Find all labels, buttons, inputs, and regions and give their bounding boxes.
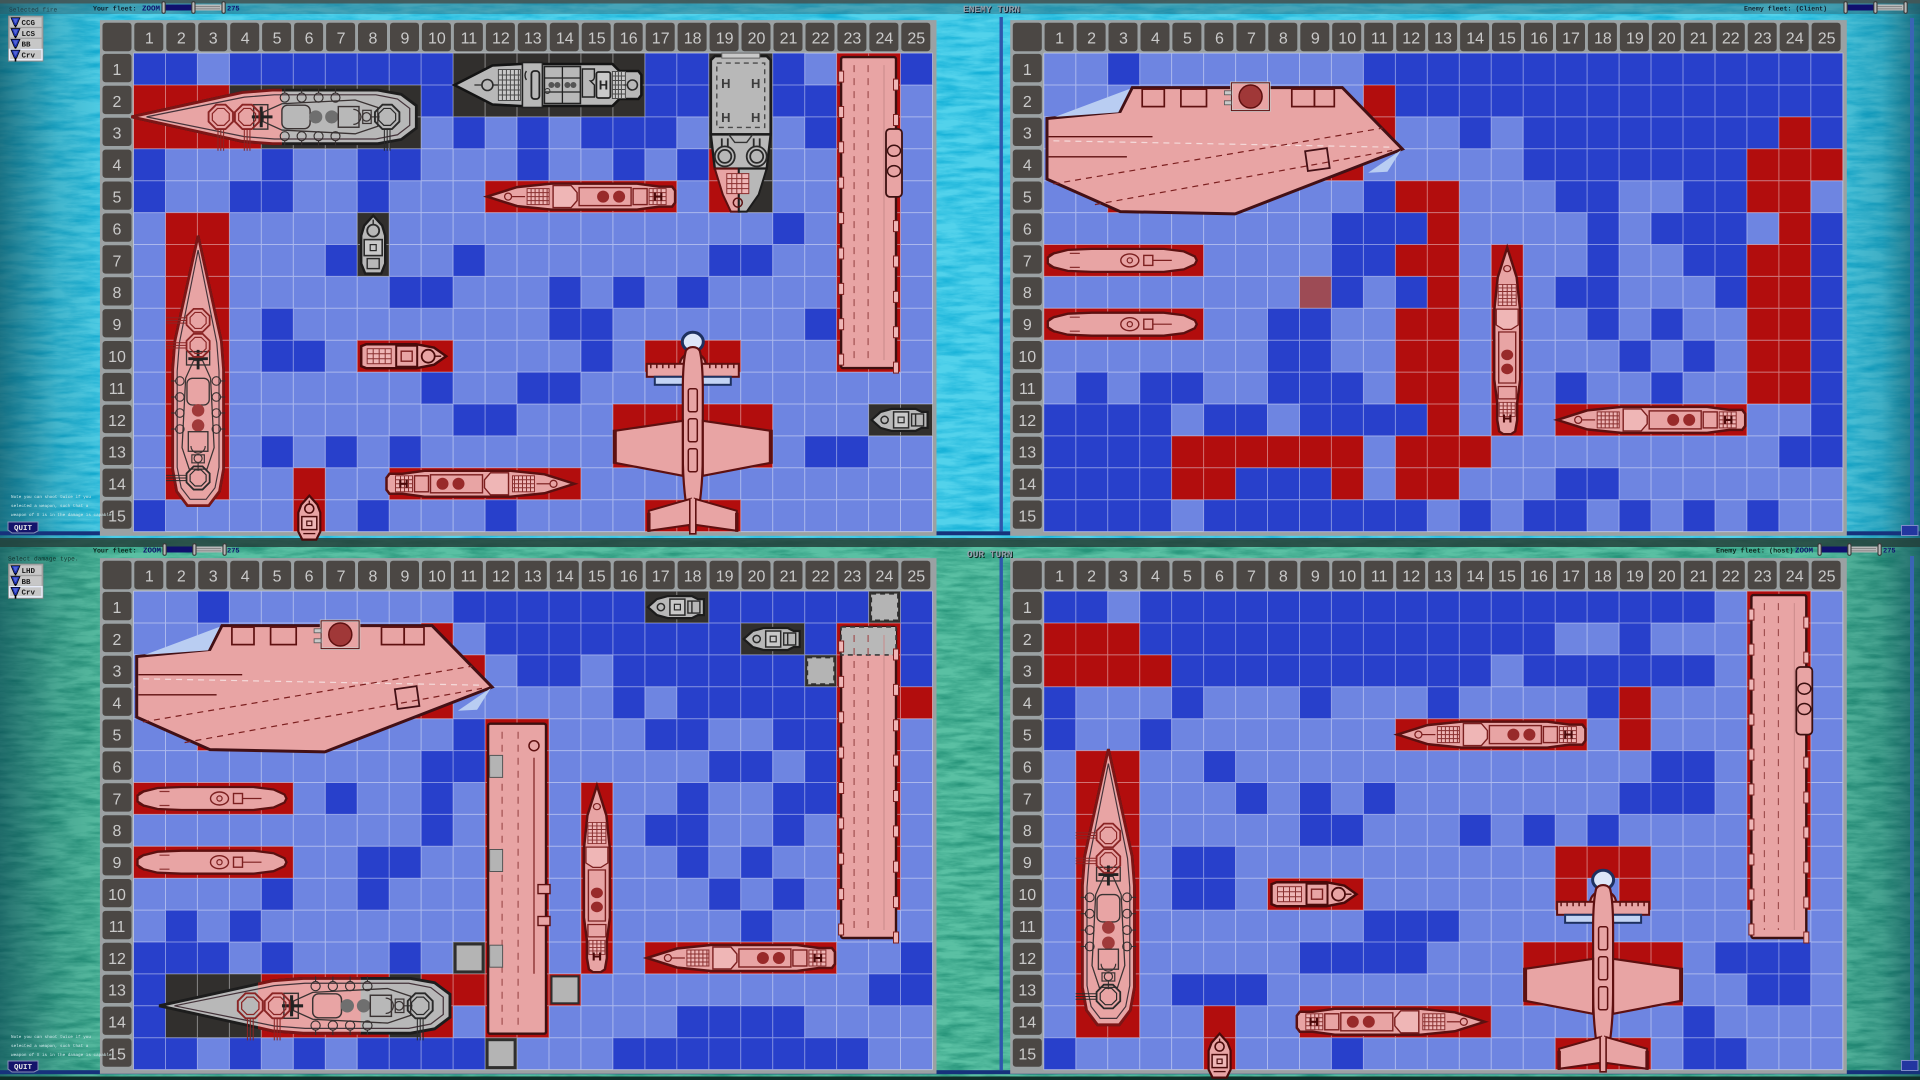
svg-text:18: 18 — [1594, 31, 1612, 48]
svg-text:25: 25 — [1818, 31, 1836, 48]
svg-text:19: 19 — [1626, 31, 1644, 48]
svg-text:4: 4 — [241, 31, 250, 48]
svg-text:5: 5 — [273, 569, 282, 586]
svg-text:Note you can shoot twice if yo: Note you can shoot twice if you — [11, 494, 91, 500]
svg-text:Crv: Crv — [22, 51, 36, 60]
svg-text:BB: BB — [22, 42, 32, 50]
svg-text:1: 1 — [113, 62, 122, 79]
svg-text:15: 15 — [588, 569, 606, 586]
svg-text:20: 20 — [748, 31, 766, 48]
svg-text:ZOOM: ZOOM — [142, 5, 161, 14]
svg-text:9: 9 — [113, 855, 122, 872]
svg-text:14: 14 — [556, 569, 574, 586]
svg-text:12: 12 — [1018, 413, 1036, 430]
svg-text:8: 8 — [113, 823, 122, 840]
svg-text:20: 20 — [1658, 569, 1676, 586]
svg-text:3: 3 — [209, 569, 218, 586]
svg-text:16: 16 — [1530, 569, 1548, 586]
svg-text:4: 4 — [1023, 158, 1032, 175]
svg-text:3: 3 — [1119, 569, 1128, 586]
svg-text:5: 5 — [1023, 728, 1032, 745]
svg-text:8: 8 — [369, 569, 378, 586]
svg-text:23: 23 — [844, 569, 862, 586]
svg-text:13: 13 — [1018, 983, 1036, 1000]
svg-text:11: 11 — [461, 569, 478, 586]
svg-text:3: 3 — [113, 664, 122, 681]
svg-text:5: 5 — [1183, 31, 1192, 48]
svg-text:10: 10 — [1338, 31, 1356, 48]
svg-text:15: 15 — [1498, 569, 1516, 586]
svg-text:14: 14 — [556, 31, 574, 48]
svg-text:ZOOM: ZOOM — [143, 547, 162, 556]
svg-text:4: 4 — [113, 158, 122, 175]
svg-text:10: 10 — [428, 569, 446, 586]
svg-text:Selected fire: Selected fire — [9, 7, 58, 14]
svg-text:13: 13 — [108, 983, 126, 1000]
svg-text:1: 1 — [1055, 569, 1064, 586]
svg-text:1: 1 — [145, 31, 154, 48]
svg-text:275: 275 — [227, 548, 240, 556]
svg-text:7: 7 — [113, 253, 122, 270]
svg-text:14: 14 — [108, 1015, 126, 1032]
svg-text:7: 7 — [1023, 791, 1032, 808]
svg-text:14: 14 — [1018, 477, 1036, 494]
svg-text:18: 18 — [1594, 569, 1612, 586]
svg-text:6: 6 — [305, 31, 314, 48]
svg-text:23: 23 — [1754, 31, 1772, 48]
svg-text:14: 14 — [1466, 569, 1484, 586]
svg-text:22: 22 — [812, 569, 830, 586]
svg-text:16: 16 — [620, 31, 638, 48]
svg-text:10: 10 — [108, 887, 126, 904]
svg-text:4: 4 — [1151, 31, 1160, 48]
svg-text:12: 12 — [492, 31, 510, 48]
svg-text:11: 11 — [1019, 381, 1036, 398]
svg-text:5: 5 — [113, 728, 122, 745]
svg-text:5: 5 — [273, 31, 282, 48]
svg-text:H: H — [721, 110, 730, 125]
svg-text:17: 17 — [652, 31, 670, 48]
svg-text:9: 9 — [113, 317, 122, 334]
svg-text:7: 7 — [1023, 253, 1032, 270]
svg-text:12: 12 — [108, 951, 126, 968]
svg-text:1: 1 — [1023, 600, 1032, 617]
svg-text:10: 10 — [1018, 887, 1036, 904]
svg-text:Your fleet:: Your fleet: — [93, 6, 137, 13]
svg-text:2: 2 — [177, 569, 186, 586]
svg-text:6: 6 — [1023, 759, 1032, 776]
svg-text:15: 15 — [1018, 509, 1036, 526]
svg-text:14: 14 — [1466, 31, 1484, 48]
svg-text:15: 15 — [1498, 31, 1516, 48]
svg-text:weapon of X is in the damage i: weapon of X is in the damage is capable — [11, 512, 112, 518]
svg-text:4: 4 — [113, 696, 122, 713]
svg-text:8: 8 — [1279, 31, 1288, 48]
svg-text:7: 7 — [1247, 31, 1256, 48]
svg-text:7: 7 — [113, 791, 122, 808]
svg-text:weapon of X is in the damage i: weapon of X is in the damage is capable — [11, 1052, 112, 1058]
svg-text:11: 11 — [461, 31, 478, 48]
svg-text:3: 3 — [1023, 664, 1032, 681]
svg-text:8: 8 — [1279, 569, 1288, 586]
svg-text:Crv: Crv — [22, 589, 36, 598]
svg-text:2: 2 — [1023, 94, 1032, 111]
svg-text:3: 3 — [1023, 126, 1032, 143]
svg-text:22: 22 — [1722, 31, 1740, 48]
svg-text:1: 1 — [113, 600, 122, 617]
svg-text:21: 21 — [1690, 569, 1708, 586]
svg-text:1: 1 — [1023, 62, 1032, 79]
svg-text:2: 2 — [1087, 569, 1096, 586]
svg-text:9: 9 — [1311, 31, 1320, 48]
svg-text:8: 8 — [1023, 823, 1032, 840]
svg-text:7: 7 — [337, 569, 346, 586]
svg-text:21: 21 — [1690, 31, 1708, 48]
svg-text:17: 17 — [1562, 31, 1580, 48]
svg-text:9: 9 — [1311, 569, 1320, 586]
svg-text:24: 24 — [1786, 569, 1804, 586]
svg-text:6: 6 — [113, 221, 122, 238]
svg-text:13: 13 — [1018, 445, 1036, 462]
svg-text:9: 9 — [401, 31, 410, 48]
svg-text:11: 11 — [109, 381, 126, 398]
svg-text:6: 6 — [113, 759, 122, 776]
svg-text:275: 275 — [227, 6, 240, 14]
svg-text:24: 24 — [876, 31, 894, 48]
svg-text:Enemy fleet: (Client): Enemy fleet: (Client) — [1744, 6, 1827, 13]
svg-text:11: 11 — [1371, 569, 1388, 586]
svg-text:12: 12 — [1402, 31, 1420, 48]
svg-text:275: 275 — [1883, 548, 1896, 556]
svg-text:19: 19 — [716, 569, 734, 586]
svg-text:2: 2 — [1087, 31, 1096, 48]
svg-text:ENEMY TURN: ENEMY TURN — [963, 4, 1020, 15]
svg-text:6: 6 — [1215, 569, 1224, 586]
svg-text:13: 13 — [108, 445, 126, 462]
svg-text:4: 4 — [241, 569, 250, 586]
svg-text:25: 25 — [1818, 569, 1836, 586]
svg-text:8: 8 — [1023, 285, 1032, 302]
svg-text:14: 14 — [108, 477, 126, 494]
svg-text:16: 16 — [620, 569, 638, 586]
svg-text:17: 17 — [1562, 569, 1580, 586]
svg-text:10: 10 — [1018, 349, 1036, 366]
svg-text:19: 19 — [1626, 569, 1644, 586]
svg-text:10: 10 — [1338, 569, 1356, 586]
svg-text:23: 23 — [844, 31, 862, 48]
svg-text:21: 21 — [780, 569, 798, 586]
svg-text:18: 18 — [684, 31, 702, 48]
svg-text:9: 9 — [1023, 855, 1032, 872]
svg-text:H: H — [599, 78, 608, 93]
svg-text:LCS: LCS — [22, 30, 36, 39]
svg-text:21: 21 — [780, 31, 798, 48]
svg-text:2: 2 — [177, 31, 186, 48]
svg-text:Note you can shoot twice if yo: Note you can shoot twice if you — [11, 1034, 91, 1040]
svg-text:20: 20 — [748, 569, 766, 586]
svg-text:12: 12 — [492, 569, 510, 586]
svg-text:15: 15 — [588, 31, 606, 48]
svg-text:11: 11 — [109, 919, 126, 936]
svg-text:Select damage type.: Select damage type. — [8, 556, 79, 563]
svg-text:24: 24 — [876, 569, 894, 586]
svg-text:11: 11 — [1371, 31, 1388, 48]
svg-text:18: 18 — [684, 569, 702, 586]
svg-text:QUIT: QUIT — [14, 1063, 33, 1072]
svg-text:14: 14 — [1018, 1015, 1036, 1032]
svg-text:QUIT: QUIT — [14, 524, 33, 533]
svg-text:24: 24 — [1786, 31, 1804, 48]
svg-text:10: 10 — [108, 349, 126, 366]
svg-text:23: 23 — [1754, 569, 1772, 586]
svg-text:5: 5 — [113, 190, 122, 207]
svg-text:4: 4 — [1023, 696, 1032, 713]
svg-text:ZOOM: ZOOM — [1795, 547, 1814, 556]
svg-text:13: 13 — [1434, 569, 1452, 586]
svg-text:2: 2 — [113, 632, 122, 649]
svg-text:9: 9 — [401, 569, 410, 586]
svg-text:13: 13 — [524, 31, 542, 48]
svg-text:2: 2 — [1023, 632, 1032, 649]
svg-text:10: 10 — [428, 31, 446, 48]
svg-text:13: 13 — [1434, 31, 1452, 48]
svg-text:19: 19 — [716, 31, 734, 48]
svg-text:H: H — [721, 76, 730, 91]
svg-text:7: 7 — [1247, 569, 1256, 586]
svg-text:11: 11 — [1019, 919, 1036, 936]
svg-text:3: 3 — [209, 31, 218, 48]
svg-text:LHD: LHD — [22, 568, 36, 576]
svg-text:1: 1 — [1055, 31, 1064, 48]
svg-text:8: 8 — [113, 285, 122, 302]
svg-text:BB: BB — [22, 579, 32, 587]
svg-text:12: 12 — [1402, 569, 1420, 586]
svg-text:13: 13 — [524, 569, 542, 586]
svg-text:selected a weapon, such that a: selected a weapon, such that a — [11, 1043, 89, 1049]
svg-text:20: 20 — [1658, 31, 1676, 48]
svg-text:16: 16 — [1530, 31, 1548, 48]
svg-text:12: 12 — [1018, 951, 1036, 968]
svg-text:15: 15 — [1018, 1047, 1036, 1064]
svg-text:H: H — [751, 76, 760, 91]
svg-text:3: 3 — [113, 126, 122, 143]
svg-text:4: 4 — [1151, 569, 1160, 586]
svg-text:2: 2 — [113, 94, 122, 111]
svg-text:6: 6 — [305, 569, 314, 586]
svg-text:17: 17 — [652, 569, 670, 586]
svg-text:22: 22 — [1722, 569, 1740, 586]
svg-text:Enemy fleet: (host): Enemy fleet: (host) — [1716, 547, 1794, 556]
svg-text:3: 3 — [1119, 31, 1128, 48]
svg-text:25: 25 — [907, 31, 925, 48]
svg-text:5: 5 — [1023, 190, 1032, 207]
svg-text:6: 6 — [1215, 31, 1224, 48]
svg-text:5: 5 — [1183, 569, 1192, 586]
svg-text:selected a weapon, such that a: selected a weapon, such that a — [11, 503, 89, 509]
svg-text:OUR TURN: OUR TURN — [967, 549, 1013, 560]
svg-text:7: 7 — [337, 31, 346, 48]
svg-text:25: 25 — [907, 569, 925, 586]
svg-text:8: 8 — [369, 31, 378, 48]
svg-text:Your fleet:: Your fleet: — [93, 548, 137, 555]
svg-text:1: 1 — [145, 569, 154, 586]
svg-text:9: 9 — [1023, 317, 1032, 334]
svg-text:12: 12 — [108, 413, 126, 430]
svg-text:H: H — [751, 110, 760, 125]
svg-text:22: 22 — [812, 31, 830, 48]
svg-text:6: 6 — [1023, 221, 1032, 238]
svg-text:CCG: CCG — [22, 19, 36, 28]
